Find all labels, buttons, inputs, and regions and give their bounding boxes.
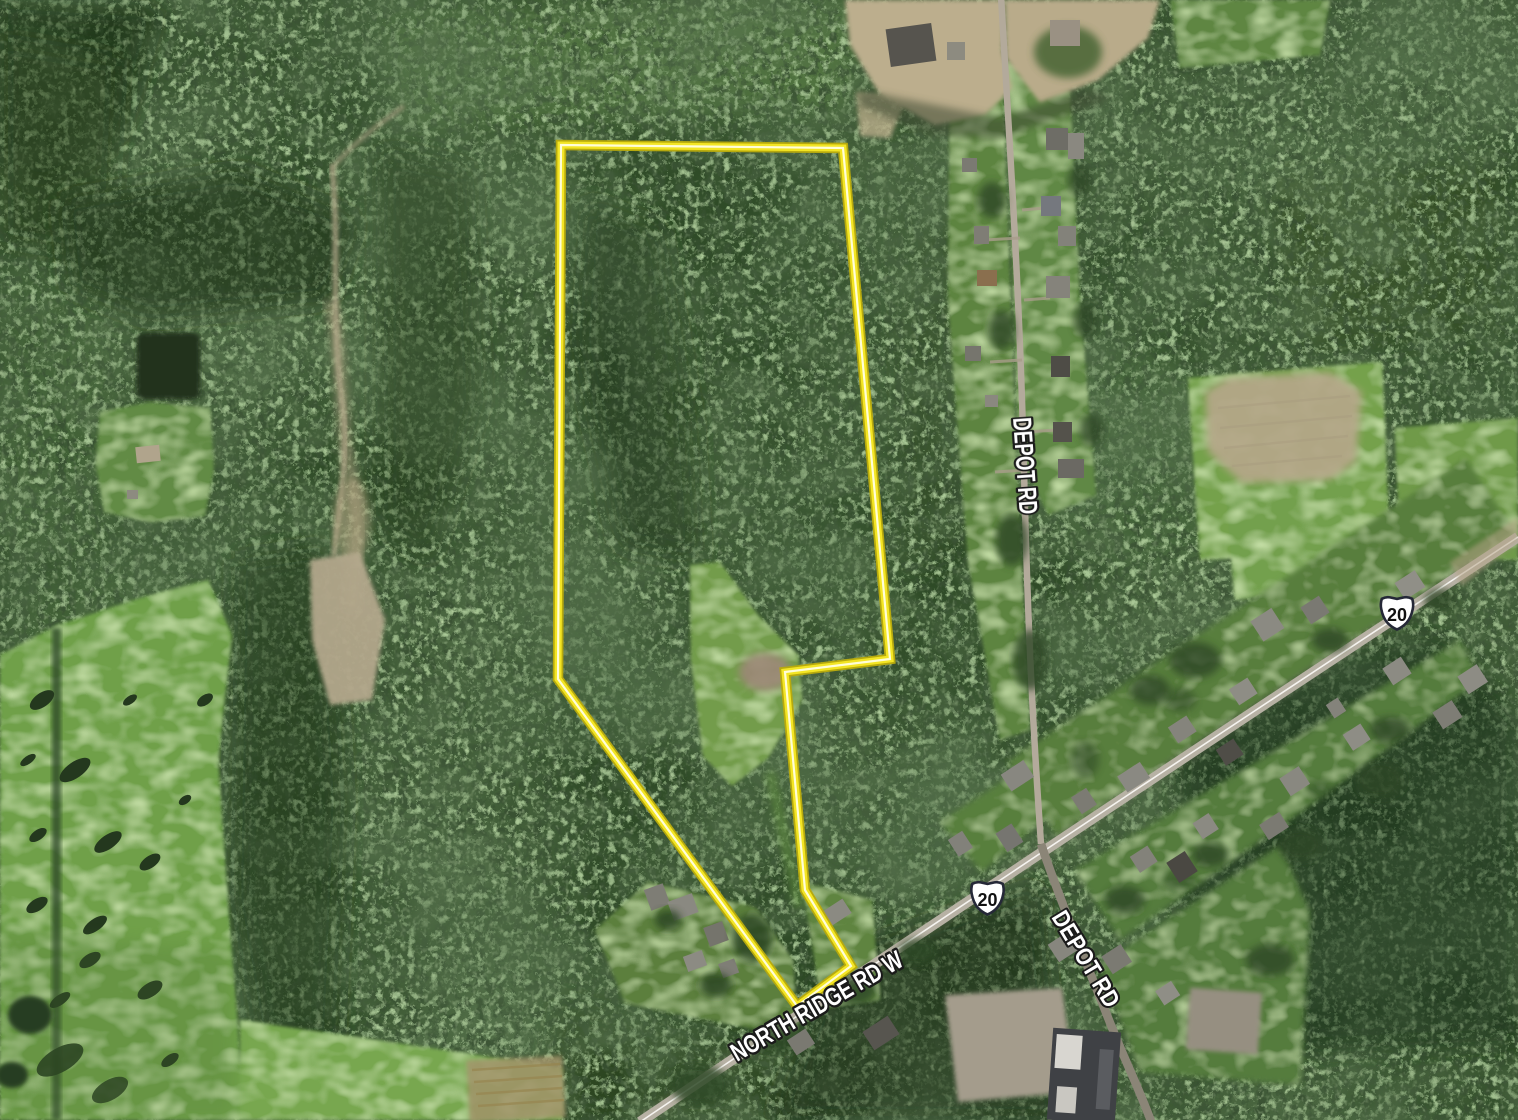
- svg-text:20: 20: [1387, 605, 1407, 625]
- svg-text:20: 20: [977, 890, 997, 910]
